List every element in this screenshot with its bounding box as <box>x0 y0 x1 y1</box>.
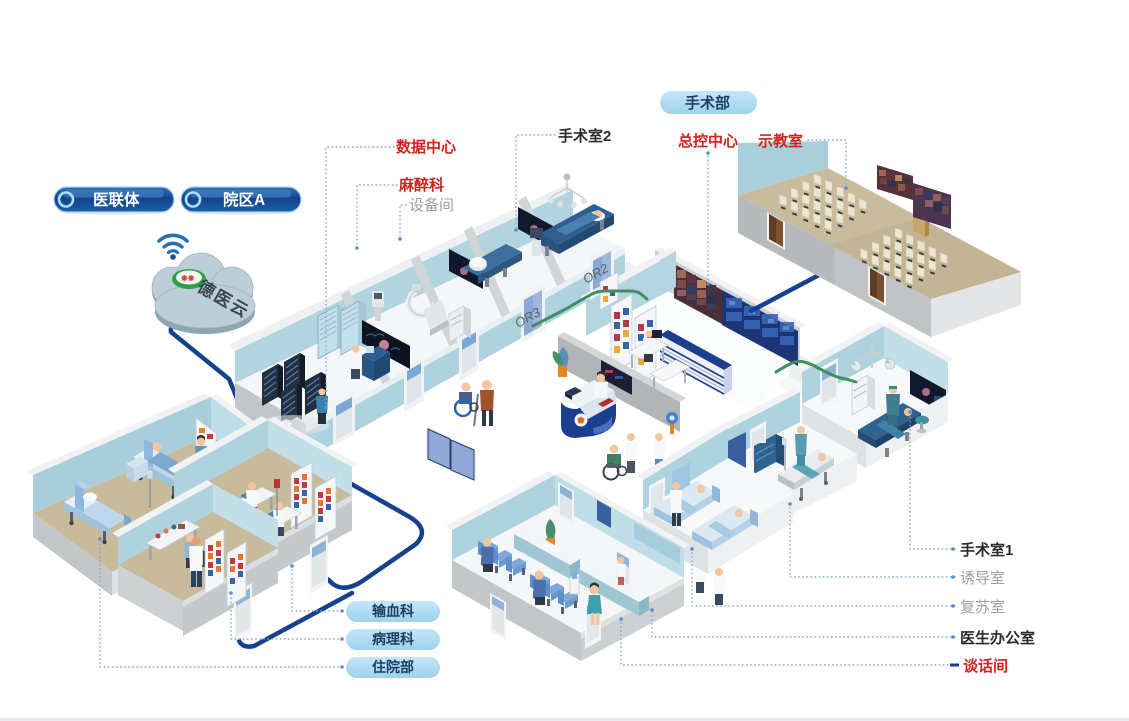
svg-text:复苏室: 复苏室 <box>960 598 1005 616</box>
svg-text:诱导室: 诱导室 <box>960 570 1005 587</box>
svg-text:谈话间: 谈话间 <box>963 657 1008 675</box>
svg-text:总控中心: 总控中心 <box>678 132 738 150</box>
svg-text:示教室: 示教室 <box>758 132 803 150</box>
svg-text:医联体: 医联体 <box>93 190 140 209</box>
svg-text:手术部: 手术部 <box>685 94 730 112</box>
svg-text:数据中心: 数据中心 <box>396 138 456 156</box>
svg-text:病理科: 病理科 <box>372 631 414 647</box>
svg-text:手术室2: 手术室2 <box>558 127 611 145</box>
svg-text:输血科: 输血科 <box>372 603 414 619</box>
svg-text:❋❋: ❋❋ <box>181 274 195 283</box>
svg-text:设备间: 设备间 <box>409 197 454 214</box>
svg-text:住院部: 住院部 <box>372 659 414 675</box>
svg-text:院区A: 院区A <box>223 190 265 209</box>
svg-text:麻醉科: 麻醉科 <box>398 176 444 194</box>
svg-text:手术室1: 手术室1 <box>960 541 1013 559</box>
svg-text:医生办公室: 医生办公室 <box>960 629 1035 647</box>
